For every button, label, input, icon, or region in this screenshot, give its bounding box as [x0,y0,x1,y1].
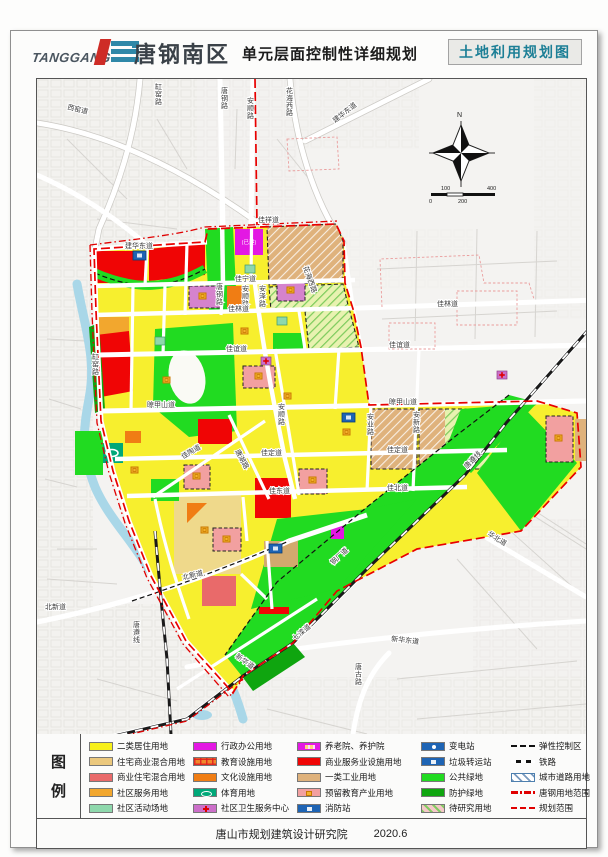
legend-label: 文化设施用地 [221,771,272,783]
legend-swatch-icon [193,804,217,813]
legend-label: 规划范围 [539,802,573,814]
legend-item: 养老院、养护院 [297,739,421,753]
legend-swatch-icon [421,804,445,813]
road-label: 佳祥道 [258,215,279,224]
legend-item: 一类工业用地 [297,770,421,784]
road-label: 缸窑路 [155,82,162,106]
legend-item: 防护绿地 [421,786,511,800]
legend-item: 铁路 [511,755,584,769]
legend-item: 唐钢用地范围 [511,786,584,800]
legend-item: 文化设施用地 [193,770,297,784]
date: 2020.6 [374,828,408,840]
reserved-education-icon [193,473,200,479]
legend-swatch-icon [421,773,445,782]
legend-swatch-icon [297,757,321,766]
legend-column: 弹性控制区铁路城市道路用地唐钢用地范围规划范围 [511,739,584,815]
legend-column: 二类居住用地住宅商业混合用地商业住宅混合用地社区服务用地社区活动场地 [89,739,193,815]
reserved-education-icon [223,536,230,542]
district-title: 唐钢南区 [134,37,230,69]
road-label: 晾甲山道 [147,400,175,409]
legend-item: 商业住宅混合用地 [89,770,193,784]
legend-label: 行政办公用地 [221,740,272,752]
reserved-education-icon [555,435,562,441]
svg-text:400: 400 [487,186,496,192]
plan-sheet-page: TANGGANG 唐钢南区 单元层面控制性详细规划 土地利用规划图 [0,0,608,857]
legend-label: 弹性控制区 [539,740,582,752]
legend-item: 体育用地 [193,786,297,800]
legend-columns: 二类居住用地住宅商业混合用地商业住宅混合用地社区服务用地社区活动场地行政办公用地… [81,734,586,818]
road-label: 佳谊道 [226,344,247,353]
plan-subtitle: 单元层面控制性详细规划 [242,43,418,64]
legend-item: 住宅商业混合用地 [89,755,193,769]
substation-icon [342,413,355,422]
legend-item: 待研究用地 [421,801,511,815]
legend-item: 商业服务业设施用地 [297,755,421,769]
legend-label: 消防站 [325,802,351,814]
road-label: 安顺路 [242,284,249,308]
legend-item: 教育设施用地 [193,755,297,769]
legend-swatch-icon [193,788,217,797]
legend-label: 社区服务用地 [117,787,168,799]
reserved-education-icon [199,293,206,299]
parcel-code-icon [131,467,138,473]
legend-label: 预留教育产业用地 [325,787,393,799]
legend-label: 铁路 [539,756,556,768]
road-label: 佳林道 [228,304,249,313]
road-label: 建华东道 [125,241,153,250]
fire-station-icon [133,251,146,260]
legend-label: 二类居住用地 [117,740,168,752]
svg-text:100: 100 [441,186,450,192]
legend-swatch-icon [421,757,445,766]
road-label: 佳林道 [437,299,458,308]
community-activity-icon [245,265,255,273]
health-center-icon [261,357,271,365]
road-label: 唐钢路 [221,86,228,110]
tanggang-logo: TANGGANG [32,38,142,70]
road-label: 唐古路 [355,662,362,686]
parcel-code-icon [343,429,350,435]
health-center-icon [497,371,507,379]
legend-label: 垃圾转运站 [449,756,492,768]
legend-label: 公共绿地 [449,771,483,783]
parcel-code-icon [163,377,170,383]
legend-item: 社区活动场地 [89,801,193,815]
legend-label: 待研究用地 [449,802,492,814]
legend-swatch-icon [511,788,535,797]
legend-label: 商业住宅混合用地 [117,771,185,783]
road-label: 佳定道 [387,445,408,454]
legend-label: 养老院、养护院 [325,740,385,752]
legend-swatch-icon [89,742,113,751]
legend-item: 行政办公用地 [193,739,297,753]
legend-item: 社区卫生服务中心 [193,801,297,815]
legend-label: 体育用地 [221,787,255,799]
legend-swatch-icon [89,757,113,766]
legend-item: 城市道路用地 [511,770,584,784]
legend-label: 商业服务业设施用地 [325,756,402,768]
road-label: 佳宁道 [235,274,256,283]
road-label: 北新道 [45,602,66,611]
legend-swatch-icon [89,773,113,782]
legend-swatch-icon [297,773,321,782]
legend-swatch-icon [511,804,535,813]
legend-item: 社区服务用地 [89,786,193,800]
road-label: 佳定道 [261,448,282,457]
legend-label: 住宅商业混合用地 [117,756,185,768]
parcel-code-icon [201,527,208,533]
legend-swatch-icon [89,788,113,797]
legend-swatch-icon [421,742,445,751]
road-label: 安顺路 [247,96,254,120]
legend-label: 一类工业用地 [325,771,376,783]
legend-item: 垃圾转运站 [421,755,511,769]
road-label: 佳东道 [269,486,290,495]
legend: 图例 二类居住用地住宅商业混合用地商业住宅混合用地社区服务用地社区活动场地行政办… [36,734,587,819]
legend-label: 社区卫生服务中心 [221,802,289,814]
legend-swatch-icon [511,757,535,766]
legend-column: 变电站垃圾转运站公共绿地防护绿地待研究用地 [421,739,511,815]
legend-column: 养老院、养护院商业服务业设施用地一类工业用地预留教育产业用地消防站 [297,739,421,815]
header: TANGGANG 唐钢南区 单元层面控制性详细规划 土地利用规划图 [10,30,596,78]
waste-transfer-icon [269,544,282,553]
map-frame: (已建) N 0 100 200 400 西窑道缸窑路唐钢路安顺路花海西路建华东… [36,78,587,736]
reserved-education-icon [255,373,262,379]
legend-swatch-icon [193,773,217,782]
design-institute: 唐山市规划建筑设计研究院 [216,826,348,842]
road-label: 晾甲山道 [389,397,417,406]
legend-swatch-icon [193,757,217,766]
parcel-code-icon [284,393,291,399]
road-label: 唐遵线 [133,620,140,644]
svg-text:200: 200 [458,199,467,205]
legend-column: 行政办公用地教育设施用地文化设施用地体育用地社区卫生服务中心 [193,739,297,815]
reserved-education-icon [309,477,316,483]
legend-title: 图例 [37,734,81,818]
legend-item: 二类居住用地 [89,739,193,753]
legend-swatch-icon [297,742,321,751]
road-label: 安业路 [367,412,374,436]
legend-swatch-icon [297,788,321,797]
road-label: 佳北道 [387,483,408,492]
legend-label: 社区活动场地 [117,802,168,814]
svg-text:0: 0 [429,199,432,205]
road-label: 唐钢路 [216,282,223,306]
legend-swatch-icon [511,742,535,751]
legend-label: 城市道路用地 [539,771,590,783]
road-label: 佳谊道 [389,340,410,349]
legend-label: 教育设施用地 [221,756,272,768]
legend-swatch-icon [193,742,217,751]
legend-swatch-icon [297,804,321,813]
legend-item: 预留教育产业用地 [297,786,421,800]
legend-label: 防护绿地 [449,787,483,799]
road-label: 缸窑路 [92,352,99,376]
built-note: (已建) [242,238,257,246]
community-activity-icon [155,337,165,345]
legend-label: 变电站 [449,740,475,752]
parcel-code-icon [241,328,248,334]
legend-item: 规划范围 [511,801,584,815]
footer: 唐山市规划建筑设计研究院 2020.6 [36,818,587,849]
road-label: 安新路 [413,410,420,434]
legend-swatch-icon [421,788,445,797]
community-activity-icon [277,317,287,325]
road-label: 花海西路 [286,86,293,117]
map-type-badge: 土地利用规划图 [448,39,582,65]
legend-label: 唐钢用地范围 [539,787,590,799]
road-label: 安顺路 [278,402,285,426]
legend-item: 变电站 [421,739,511,753]
legend-item: 公共绿地 [421,770,511,784]
reserved-education-icon [287,287,294,293]
road-label: 安泽路 [259,284,266,308]
legend-swatch-icon [89,804,113,813]
legend-item: 消防站 [297,801,421,815]
map-canvas: (已建) N 0 100 200 400 西窑道缸窑路唐钢路安顺路花海西路建华东… [37,79,586,735]
legend-swatch-icon [511,773,535,782]
north-label: N [457,112,462,119]
legend-item: 弹性控制区 [511,739,584,753]
